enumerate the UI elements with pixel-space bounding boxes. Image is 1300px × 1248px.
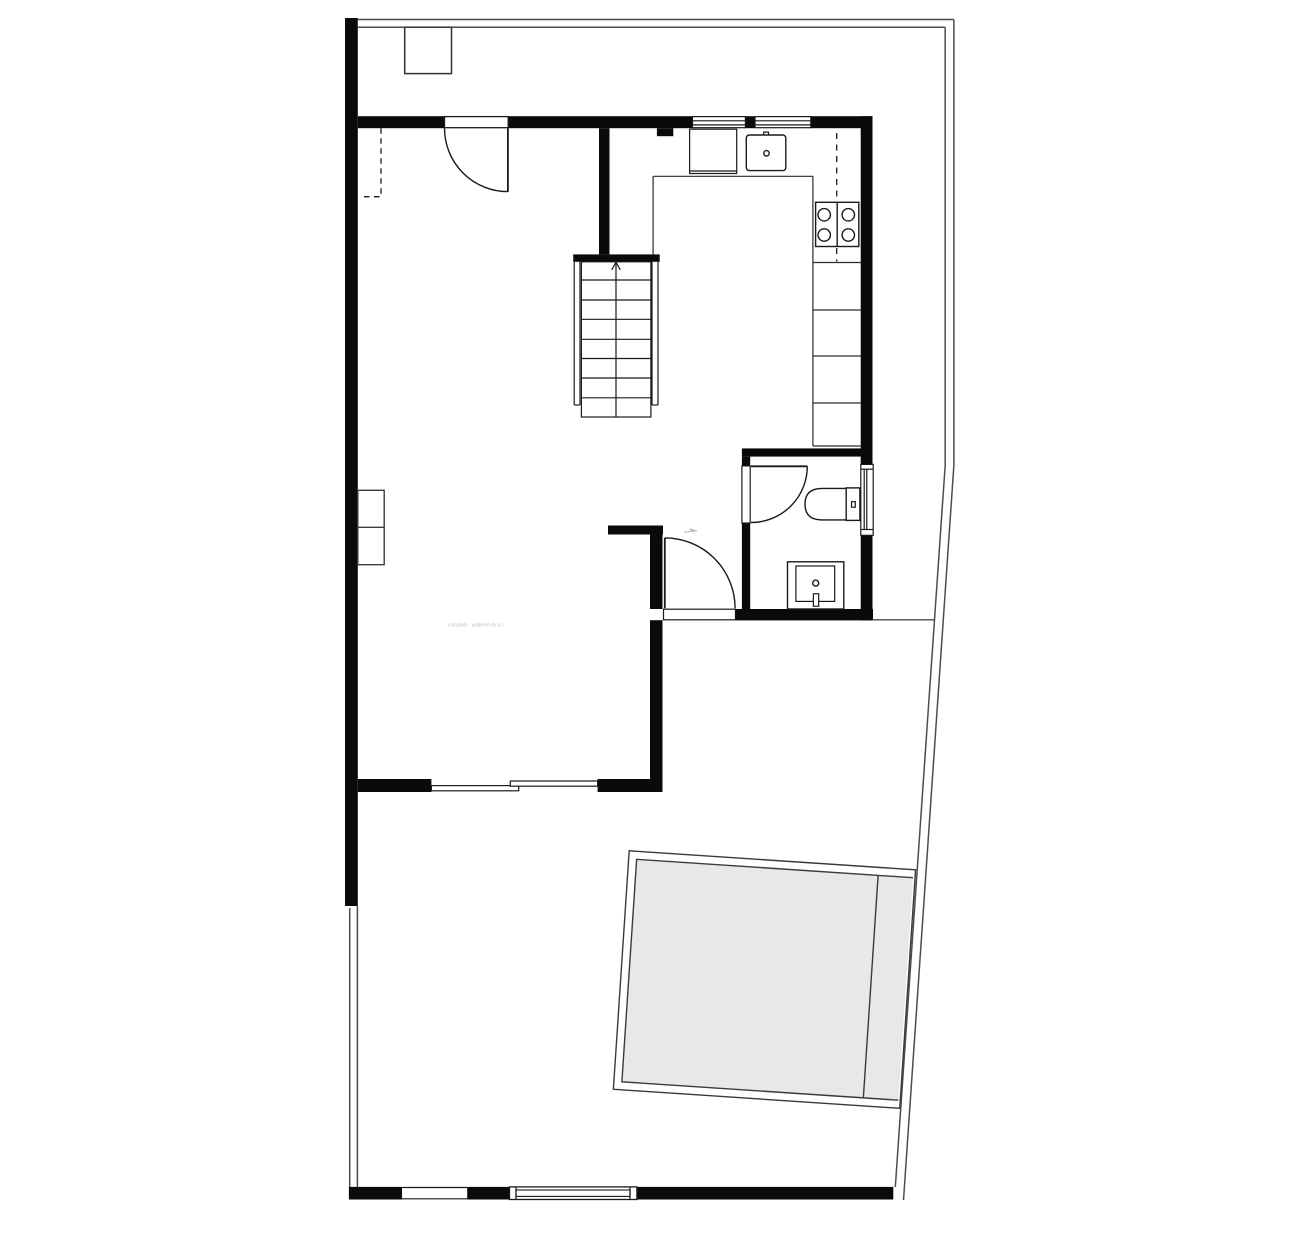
svg-text:v.d plan - waterm rk s.l: v.d plan - waterm rk s.l [448,623,503,629]
